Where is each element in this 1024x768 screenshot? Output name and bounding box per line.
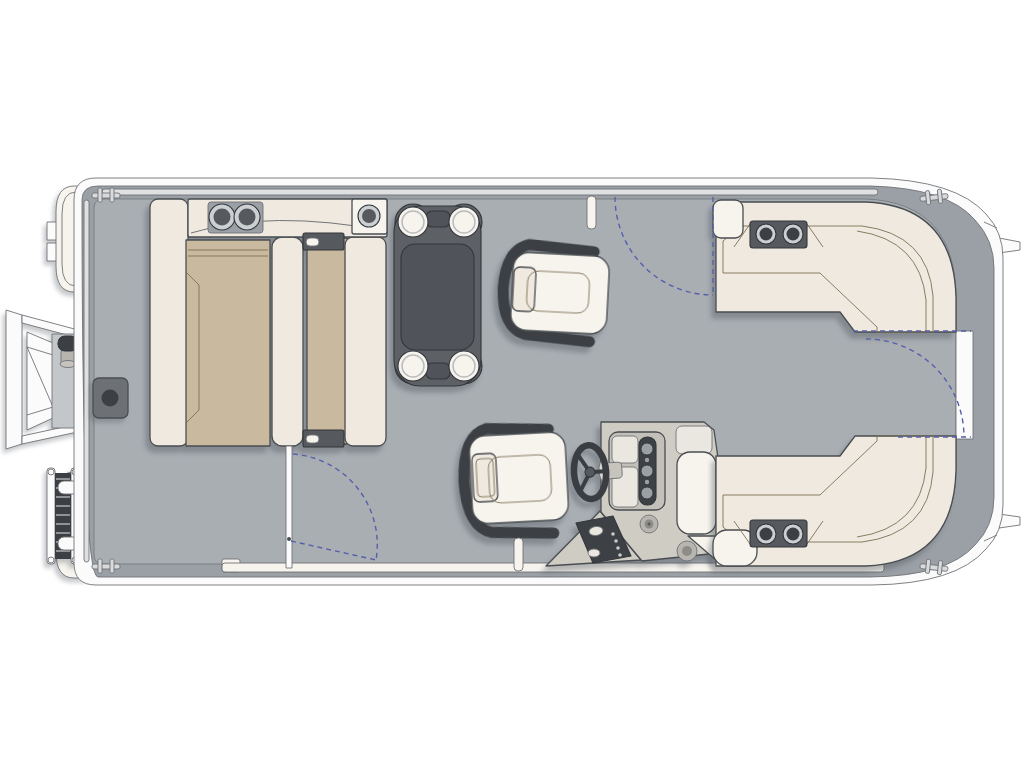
bow-gate [956,331,973,439]
port-bow-lounge [713,200,956,332]
left-fence-rail [84,200,89,562]
table-handle [426,363,450,379]
stern-bench-group [150,199,387,447]
starboard-side-gate [286,446,292,568]
deck-floor-fitting [93,378,128,418]
starboard-bow-lounge [713,436,956,566]
captain-chair [461,424,570,537]
stern-bench-right-cushion [307,238,347,444]
stern-walkthrough-filler [272,237,303,446]
table-handle [426,211,450,227]
chair-back-cushion [512,267,536,312]
pontoon-floorplan-canvas [0,0,1024,768]
stern-bench-right-backrest [345,237,386,446]
fence-post-bottom [514,538,523,571]
pedestal-table [394,204,482,386]
stern-bench-left-backrest [150,199,188,446]
companion-chair [501,243,611,342]
console-side-panel [677,452,716,534]
gauges [641,443,653,499]
top-fence-rail [102,189,878,195]
fence-post-top [587,196,596,229]
stern-boarding-stairs [6,310,82,449]
